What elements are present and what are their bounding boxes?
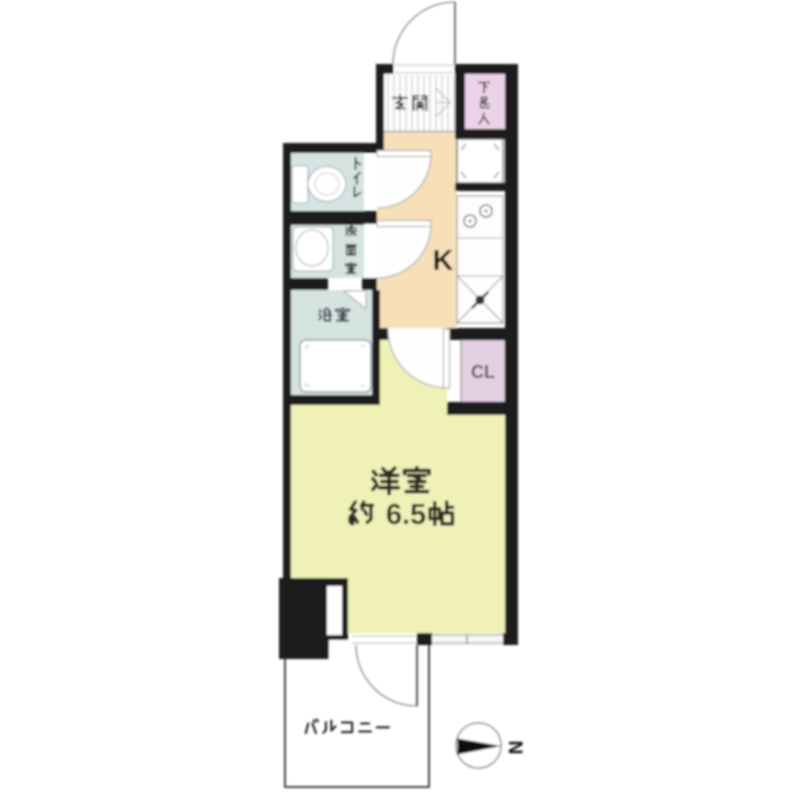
svg-text:K: K bbox=[433, 245, 454, 277]
svg-text:6.5: 6.5 bbox=[386, 499, 426, 531]
svg-text:N: N bbox=[504, 741, 525, 755]
svg-text:CL: CL bbox=[471, 362, 495, 382]
